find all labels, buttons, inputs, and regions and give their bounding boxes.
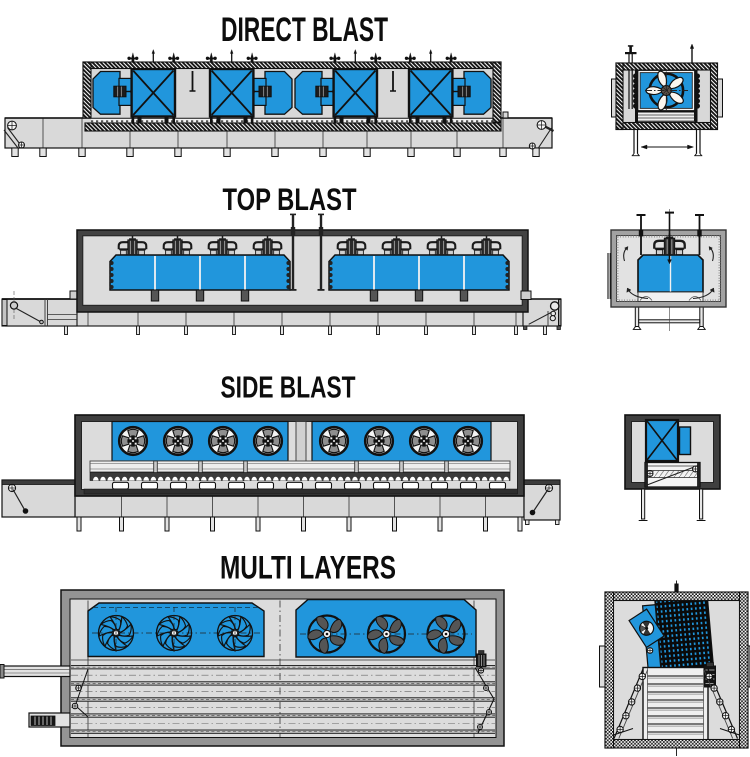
svg-text:TOP BLAST: TOP BLAST [223,181,357,217]
svg-text:DIRECT BLAST: DIRECT BLAST [221,11,388,49]
svg-text:SIDE BLAST: SIDE BLAST [221,371,356,405]
svg-text:MULTI LAYERS: MULTI LAYERS [220,550,396,586]
